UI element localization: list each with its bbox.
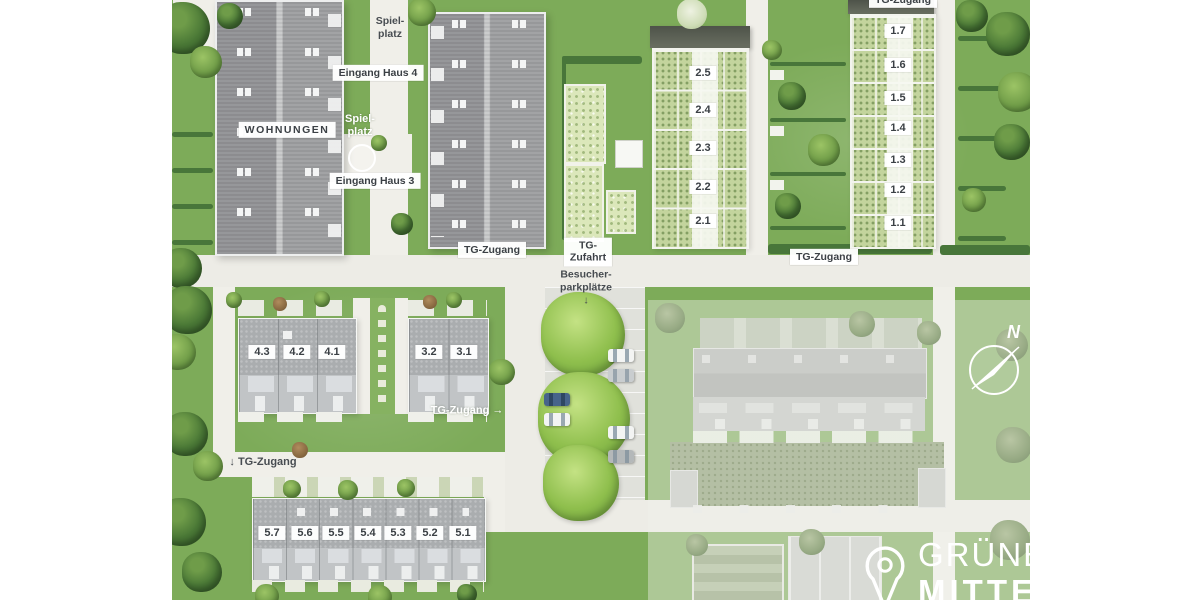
rear-terraces <box>238 300 355 316</box>
tree <box>775 193 801 219</box>
site-plan: Spiel- platz Eingang Haus 4 WOHNUNGEN Sp… <box>172 0 1030 600</box>
garden-hedge <box>770 62 846 66</box>
garden-hedge <box>172 168 213 173</box>
garden-hedge <box>958 236 1006 241</box>
garden-hedge <box>172 240 213 245</box>
label-eingang-haus3: Eingang Haus 3 <box>330 173 421 189</box>
garden-hedge <box>770 172 846 176</box>
unit-label-3-2: 3.2 <box>415 345 442 359</box>
muted-facade-windows <box>699 403 919 413</box>
unit-label-3-1: 3.1 <box>450 345 477 359</box>
tree <box>808 134 840 166</box>
shrub <box>226 292 242 308</box>
tree <box>956 0 988 32</box>
tree <box>190 46 222 78</box>
tree <box>172 498 206 546</box>
unit-label-2-5: 2.5 <box>689 66 716 80</box>
roof-windows <box>297 508 469 516</box>
tree <box>172 334 196 370</box>
label-eingang-haus4: Eingang Haus 4 <box>333 65 424 81</box>
unit-label-1-5: 1.5 <box>884 91 911 105</box>
location-pin-icon <box>860 538 910 600</box>
road-hedge <box>940 245 1030 255</box>
shrub <box>397 479 415 497</box>
shrub <box>314 291 330 307</box>
unit-label-5-7: 5.7 <box>258 526 285 540</box>
tree <box>986 12 1030 56</box>
carport-roof <box>650 26 750 48</box>
unit-label-5-2: 5.2 <box>416 526 443 540</box>
unit-separators <box>409 319 488 413</box>
unit-label-1-2: 1.2 <box>884 183 911 197</box>
tree <box>489 359 515 385</box>
muted-shed <box>918 468 946 508</box>
muted-shed <box>670 470 698 508</box>
logo-line1: GRÜNE <box>918 536 1030 573</box>
shrub <box>273 297 287 311</box>
tree <box>994 124 1030 160</box>
tree <box>778 82 806 110</box>
rowhouse-building-3 <box>408 318 489 414</box>
muted-tree <box>799 529 825 555</box>
garden-pavilion <box>615 140 643 168</box>
muted-tree <box>849 311 875 337</box>
parked-car <box>608 349 634 362</box>
tree <box>193 451 223 481</box>
parked-car <box>544 413 570 426</box>
roof-windows <box>460 20 466 241</box>
stepping-stones <box>378 305 386 408</box>
blossom-tree <box>677 0 707 29</box>
label-tg-zufahrt: TG- Zufahrt <box>564 238 612 267</box>
roof-windows <box>512 20 518 241</box>
tree <box>217 3 243 29</box>
muted-tree <box>686 534 708 556</box>
garden-hedge <box>172 132 213 137</box>
tree <box>172 286 212 334</box>
shrub <box>283 480 301 498</box>
site-plan-screenshot: Spiel- platz Eingang Haus 4 WOHNUNGEN Sp… <box>0 0 1200 600</box>
balconies <box>431 26 444 237</box>
garden-hedge <box>770 226 846 230</box>
parking-aisle <box>505 287 545 506</box>
label-tg-zugang-mid: TG-Zugang → <box>431 404 504 417</box>
unit-label-5-1: 5.1 <box>449 526 476 540</box>
unit-label-2-2: 2.2 <box>689 180 716 194</box>
terrace <box>770 70 784 80</box>
muted-garden <box>670 442 944 506</box>
unit-label-4-2: 4.2 <box>283 345 310 359</box>
label-tg-zugang-right: TG-Zugang <box>790 249 858 265</box>
tree <box>172 412 208 456</box>
parked-car <box>544 393 570 406</box>
label-spielplatz-top: Spiel- platz <box>376 15 405 41</box>
parked-car <box>608 450 634 463</box>
label-tg-zugang-bottom: ↓ TG-Zugang <box>229 456 296 470</box>
footpath <box>395 298 408 414</box>
shrub <box>423 295 437 309</box>
front-terraces <box>238 412 355 422</box>
shrub <box>338 480 358 500</box>
garden-hedge <box>172 204 213 209</box>
garden-bed <box>564 84 606 164</box>
unit-label-4-1: 4.1 <box>318 345 345 359</box>
tree <box>391 213 413 235</box>
rowhouse-building-4 <box>238 318 357 414</box>
project-logo: GRÜNE MITTE <box>860 536 1030 600</box>
unit-label-1-6: 1.6 <box>884 58 911 72</box>
muted-back-gardens <box>700 318 922 348</box>
unit-label-2-3: 2.3 <box>689 141 716 155</box>
unit-label-1-7: 1.7 <box>884 24 911 38</box>
compass-n-label: N <box>1007 322 1021 342</box>
tree <box>457 584 477 600</box>
terrace <box>770 126 784 136</box>
muted-tree <box>917 321 941 345</box>
unit-label-1-1: 1.1 <box>884 216 911 230</box>
garden-bed <box>606 190 636 234</box>
roof-windows <box>452 20 458 241</box>
tree <box>408 0 436 26</box>
unit-label-2-4: 2.4 <box>689 103 716 117</box>
footpath <box>213 287 235 460</box>
tree <box>998 72 1030 112</box>
muted-garden-beds <box>692 544 784 600</box>
logo-line2: MITTE <box>918 573 1030 600</box>
unit-label-4-3: 4.3 <box>248 345 275 359</box>
muted-doors <box>699 419 919 429</box>
terrace <box>770 180 784 190</box>
unit-label-5-6: 5.6 <box>291 526 318 540</box>
muted-fence-posts <box>693 505 925 513</box>
roof-window <box>283 331 292 339</box>
roof-windows <box>520 20 526 241</box>
muted-building-roof <box>693 348 927 399</box>
unit-label-1-4: 1.4 <box>884 121 911 135</box>
garden-bed <box>564 164 604 242</box>
tree <box>182 552 222 592</box>
label-wohnungen: WOHNUNGEN <box>239 122 336 138</box>
label-spielplatz-mid: Spiel- platz <box>345 113 375 139</box>
footpath <box>484 452 505 532</box>
compass-north-indicator: N <box>963 318 1030 404</box>
apartment-building-haus3 <box>428 12 546 249</box>
parked-car <box>608 369 634 382</box>
garden-hedge <box>770 118 846 122</box>
unit-label-5-3: 5.3 <box>384 526 411 540</box>
muted-roof-windows <box>702 355 918 363</box>
shrub <box>446 292 462 308</box>
unit-label-5-4: 5.4 <box>354 526 381 540</box>
tree <box>762 40 782 60</box>
unit-label-5-5: 5.5 <box>322 526 349 540</box>
muted-building-facade <box>693 397 925 431</box>
muted-terraces <box>693 431 925 443</box>
unit-label-2-1: 2.1 <box>689 214 716 228</box>
logo-text: GRÜNE MITTE <box>918 536 1030 600</box>
garden-hedge <box>562 56 642 64</box>
label-tg-zugang-haus3: TG-Zugang <box>458 242 526 258</box>
unit-separators <box>239 319 356 413</box>
muted-tree <box>996 427 1030 463</box>
muted-tree <box>655 303 685 333</box>
label-besucher-parkplaetze: Besucher- parkplätze ↓ <box>560 268 612 307</box>
label-tg-zugang-top: TG-Zugang <box>869 0 937 8</box>
tree <box>962 188 986 212</box>
parked-car <box>608 426 634 439</box>
unit-label-1-3: 1.3 <box>884 153 911 167</box>
